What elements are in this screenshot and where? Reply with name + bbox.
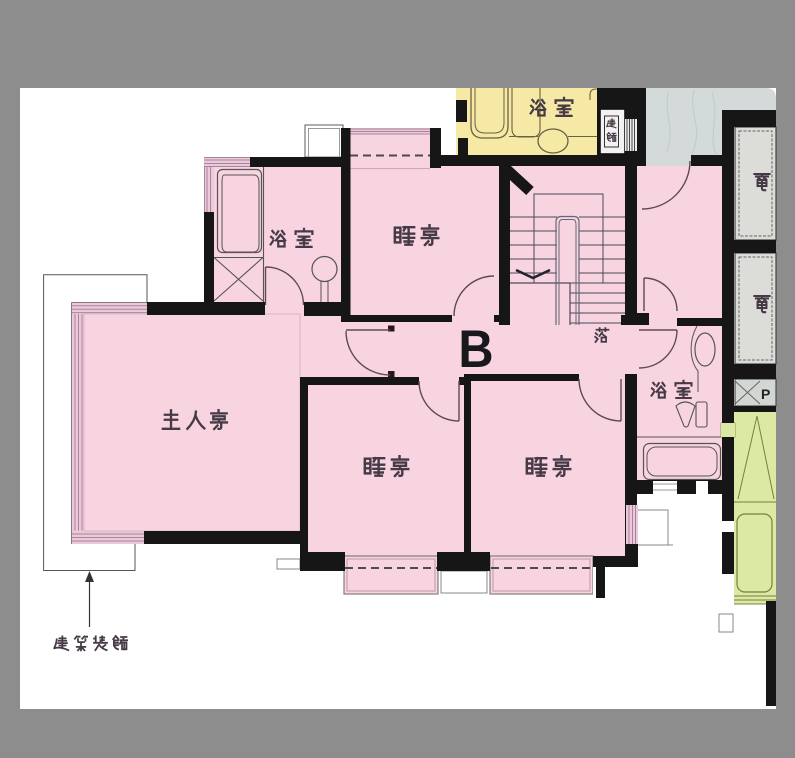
svg-text:B: B — [458, 319, 493, 378]
svg-text:P: P — [761, 386, 770, 402]
